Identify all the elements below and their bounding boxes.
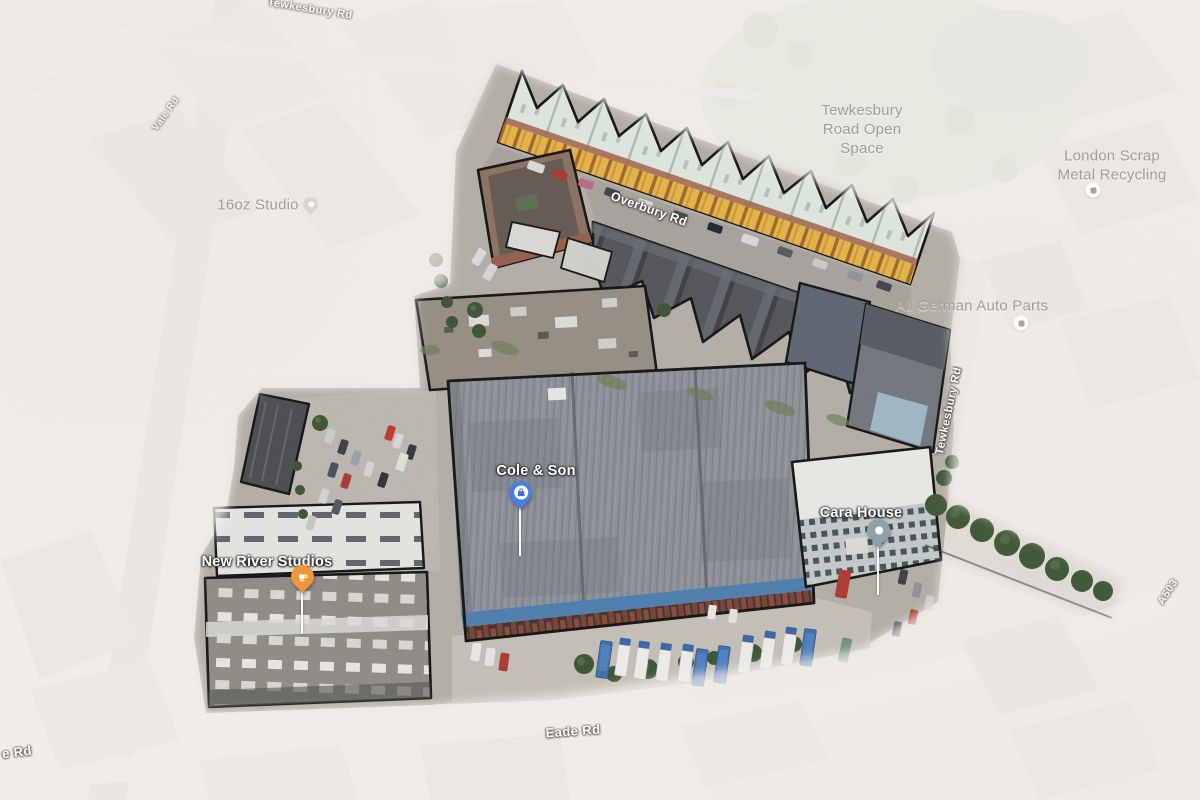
scrap-metal-marker-icon[interactable] (1086, 183, 1101, 198)
marker-leader-line (301, 592, 303, 634)
scrap-metal-label: London Scrap Metal Recycling (1058, 147, 1167, 185)
auto-parts-marker-icon[interactable] (1014, 316, 1029, 331)
cole-and-son-label: Cole & Son (496, 463, 575, 479)
coffee-cup-icon (296, 571, 308, 583)
auto-parts-label: All German Auto Parts (896, 298, 1049, 317)
marker-leader-line (519, 508, 521, 556)
dot-icon (874, 527, 882, 535)
shopping-bag-icon (515, 488, 525, 498)
marker-leader-line (877, 546, 879, 595)
cafe-pin-icon (286, 560, 319, 593)
studio-16oz-label: 16oz Studio (217, 197, 298, 216)
open-space-label: Tewkesbury Road Open Space (821, 102, 902, 158)
aerial-site-map: Tewkesbury Road Open Space London Scrap … (0, 0, 1200, 800)
wrench-icon (1018, 320, 1024, 326)
cara-house-label: Cara House (820, 505, 903, 521)
lock-icon (1090, 187, 1096, 193)
aerial-map-canvas (0, 0, 1200, 800)
